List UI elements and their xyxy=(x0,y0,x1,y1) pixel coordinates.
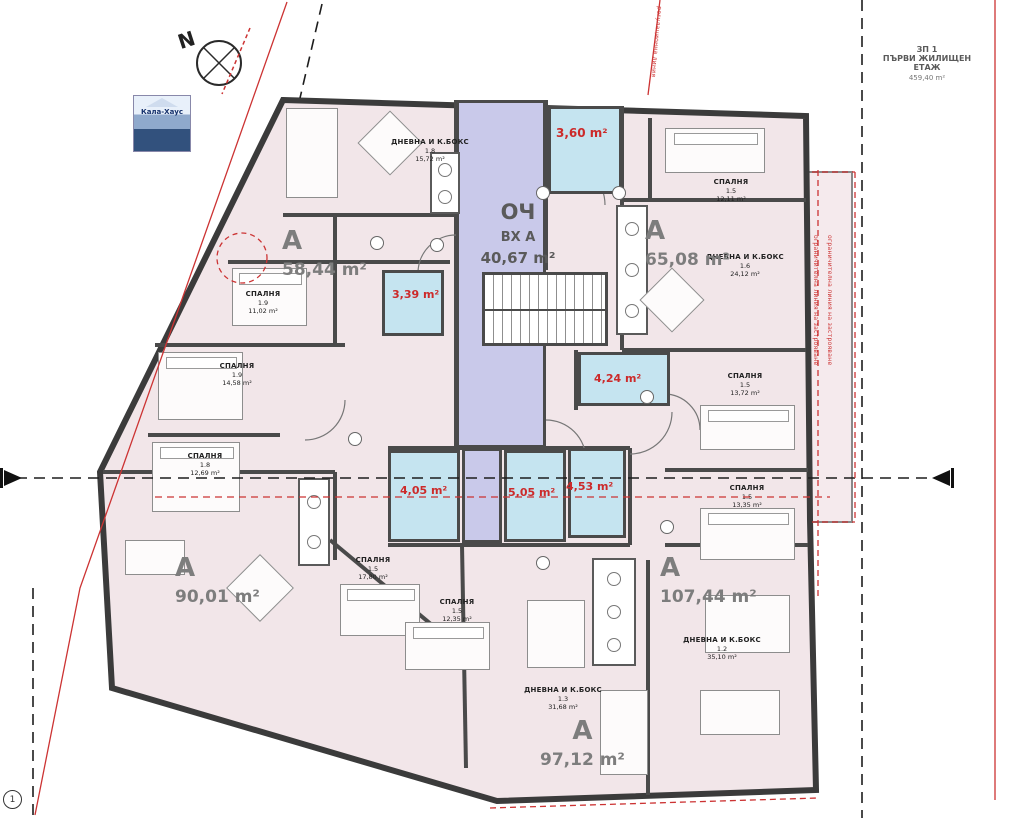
red-annotation-right-1: ограничителна линия на застрояване xyxy=(812,235,819,395)
apartment-label-a1: А 58,44 m² xyxy=(282,228,367,280)
bed xyxy=(665,128,765,173)
title-block: ЗП 1 ПЪРВИ ЖИЛИЩЕН ЕТАЖ 459,40 m² xyxy=(862,45,992,82)
logo-text: Кала-Хаус xyxy=(141,108,183,116)
room-label: ДНЕВНА И К.БОКС 1.2 35,10 m² xyxy=(662,636,782,661)
red-annotation-top: регулационна линия xyxy=(648,6,663,94)
grid-axis-marker: 1 xyxy=(3,790,22,809)
stove-burner-icon xyxy=(607,572,621,586)
stove-burner-icon xyxy=(438,163,452,177)
floor-plan-canvas: ДНЕВНА И К.БОКС 1.8 15,72 m² СПАЛНЯ 1.9 … xyxy=(0,0,1017,818)
stove-burner-icon xyxy=(438,190,452,204)
entrance-oc-label: ОЧ xyxy=(478,200,558,224)
bathroom-row-3 xyxy=(568,448,626,538)
bathroom-left xyxy=(382,270,444,336)
room-label: СПАЛНЯ 1.5 12,35 m² xyxy=(412,598,502,623)
stove-burner-icon xyxy=(625,263,639,277)
room-label: СПАЛНЯ 1.5 12,11 m² xyxy=(686,178,776,203)
bed xyxy=(405,622,490,670)
sofa xyxy=(286,108,338,198)
kitchen-counter xyxy=(592,558,636,666)
door-marker-icon xyxy=(348,432,362,446)
room-label: ДНЕВНА И К.БОКС 1.8 15,72 m² xyxy=(385,138,475,163)
bed xyxy=(700,508,795,560)
room-label: СПАЛНЯ 1.5 13,35 m² xyxy=(702,484,792,509)
stove-burner-icon xyxy=(625,222,639,236)
entrance-vh-label: ВХ А xyxy=(478,230,558,245)
apartment-label-a3: А 90,01 m² xyxy=(175,555,260,607)
bath-area-label: 4,05 m² xyxy=(400,484,447,497)
sink-icon xyxy=(307,535,321,549)
entrance-area-label: 40,67 m² xyxy=(468,249,568,267)
bed xyxy=(700,405,795,450)
door-marker-icon xyxy=(430,238,444,252)
room-label: СПАЛНЯ 1.5 13,72 m² xyxy=(700,372,790,397)
stove-burner-icon xyxy=(307,495,321,509)
bathroom-top xyxy=(548,106,622,194)
door-marker-icon xyxy=(536,556,550,570)
room-label: СПАЛНЯ 1.9 14,58 m² xyxy=(192,362,282,387)
shaft xyxy=(462,448,502,543)
stove-burner-icon xyxy=(607,605,621,619)
red-annotation-right-2: ограничителна линия на застрояване xyxy=(826,235,833,395)
room-label: СПАЛНЯ 1.8 12,69 m² xyxy=(160,452,250,477)
room-label: ДНЕВНА И К.БОКС 1.3 31,68 m² xyxy=(508,686,618,711)
apartment-label-a4: А 107,44 m² xyxy=(660,555,757,607)
room-label: СПАЛНЯ 1.5 17,80 m² xyxy=(328,556,418,581)
door-marker-icon xyxy=(370,236,384,250)
north-letter: N xyxy=(175,26,198,54)
sink-icon xyxy=(625,304,639,318)
door-marker-icon xyxy=(536,186,550,200)
room-label: СПАЛНЯ 1.9 11,02 m² xyxy=(218,290,308,315)
bath-area-label: 4,53 m² xyxy=(566,480,613,493)
compass-icon xyxy=(197,28,250,94)
company-logo: Кала-Хаус xyxy=(133,95,191,152)
bath-area-label: 3,39 m² xyxy=(392,288,439,301)
apartment-label-a2: А 65,08 m² xyxy=(645,218,730,270)
bath-area-label: 4,24 m² xyxy=(594,372,641,385)
apartment-label-a5: А 97,12 m² xyxy=(540,718,625,770)
staircase xyxy=(482,272,608,346)
dining-table xyxy=(527,600,585,668)
kitchen-counter xyxy=(298,478,330,566)
kitchen-counter xyxy=(616,205,648,335)
door-marker-icon xyxy=(660,520,674,534)
logo-roof-icon xyxy=(146,98,178,107)
bath-area-label: 3,60 m² xyxy=(556,126,608,140)
sofa xyxy=(700,690,780,735)
door-marker-icon xyxy=(640,390,654,404)
door-marker-icon xyxy=(612,186,626,200)
bath-area-label: 5,05 m² xyxy=(508,486,555,499)
sink-icon xyxy=(607,638,621,652)
